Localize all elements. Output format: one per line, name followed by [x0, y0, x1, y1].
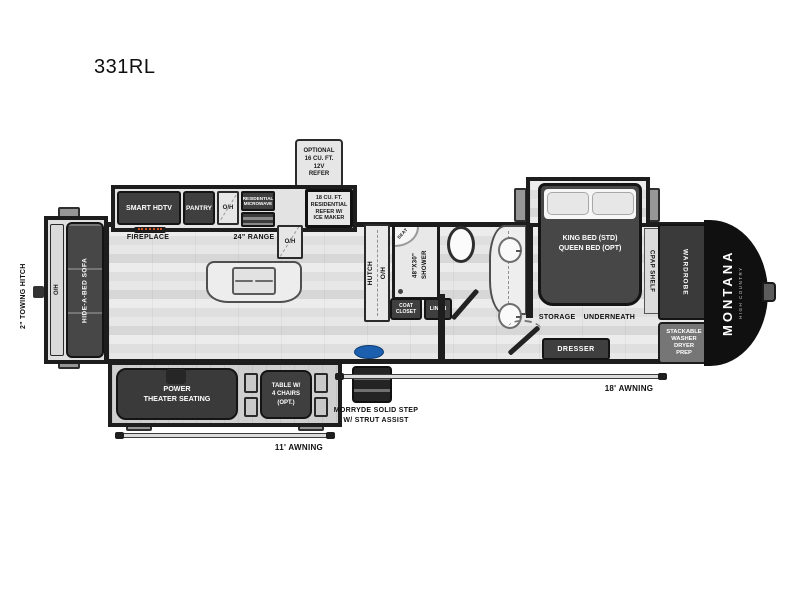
hutch-cabinet: HUTCH O/H [364, 224, 390, 322]
morryde-logo [354, 345, 384, 359]
chair [244, 373, 258, 393]
brand-logo: MONTANA [720, 234, 735, 352]
dresser: DRESSER [542, 338, 610, 360]
washer-dryer-prep: STACKABLE WASHER DRYER PREP [658, 322, 710, 364]
residential-microwave: RESIDENTIAL MICROWAVE [241, 191, 275, 211]
smart-hdtv: SMART HDTV [117, 191, 181, 225]
bed: KING BED (STD) QUEEN BED (OPT) [538, 183, 642, 306]
sink-bowl [235, 280, 253, 282]
range-oven [241, 212, 275, 227]
wardrobe-label: WARDROBE [682, 249, 689, 296]
cpap-shelf-label: CPAP SHELF [649, 250, 655, 292]
wall-segment [438, 294, 445, 362]
vanity-sink [498, 237, 522, 263]
awning-door-side-label: 11' AWNING [254, 443, 344, 452]
shower: SEAT 48"X30" SHOWER [392, 224, 440, 300]
bed-label: KING BED (STD) QUEEN BED (OPT) [541, 234, 639, 254]
awning-door-side-bar [116, 433, 334, 438]
hide-a-bed-sofa: HIDE-A-BED SOFA [66, 222, 104, 358]
front-cap: MONTANA HIGH COUNTRY [704, 220, 768, 366]
bath-vanity [489, 225, 527, 315]
kitchen-slideout: SMART HDTV PANTRY O/H RESIDENTIAL MICROW… [111, 185, 357, 232]
chair [244, 397, 258, 417]
towing-hitch-label: 2" TOWING HITCH [20, 244, 27, 348]
dinette-table: TABLE W/ 4 CHAIRS (OPT.) [260, 370, 312, 419]
pillow [547, 192, 589, 215]
sofa-overhead-cabinet: O/H [50, 224, 64, 356]
step-label: MORRYDE SOLID STEP W/ STRUT ASSIST [306, 406, 446, 426]
hutch-label: HUTCH O/H [364, 261, 390, 285]
shower-label: 48"X30" SHOWER [407, 235, 435, 295]
kitchen-island [206, 261, 302, 303]
pillow [592, 192, 634, 215]
double-sink [232, 267, 276, 295]
towing-hitch-knob [33, 286, 44, 298]
entry-steps [352, 366, 392, 403]
shower-drain [398, 289, 403, 294]
residential-refer: 18 CU. FT. RESIDENTIAL REFER W/ ICE MAKE… [305, 189, 353, 228]
model-title: 331RL [94, 56, 155, 79]
chair [314, 373, 328, 393]
sink-bowl [255, 280, 273, 282]
sofa-slideout: O/H HIDE-A-BED SOFA [44, 216, 108, 364]
awning-front-bar [336, 374, 666, 379]
storage-underneath-label: STORAGE UNDERNEATH [524, 314, 650, 321]
toilet [447, 226, 475, 263]
floorplan-canvas: 331RL OPTIONAL 16 CU. FT. 12V REFER 2" T… [0, 0, 800, 600]
optional-refer-cabinet: OPTIONAL 16 CU. FT. 12V REFER [295, 139, 343, 188]
brand-sub-logo: HIGH COUNTRY [738, 250, 743, 336]
fireplace-label: FIREPLACE [116, 234, 180, 241]
overhead-cabinet: O/H [277, 225, 303, 259]
fireplace-flames [134, 227, 166, 233]
wall-segment [526, 226, 533, 318]
cpap-shelf: CPAP SHELF [644, 228, 659, 314]
coat-closet: COAT CLOSET [390, 298, 422, 320]
kingpin [762, 282, 776, 302]
range-label: 24" RANGE [226, 234, 282, 241]
pantry: PANTRY [183, 191, 215, 225]
cup-console [166, 369, 186, 384]
awning-front-label: 18' AWNING [584, 384, 674, 393]
overhead-cabinet: O/H [217, 191, 239, 225]
